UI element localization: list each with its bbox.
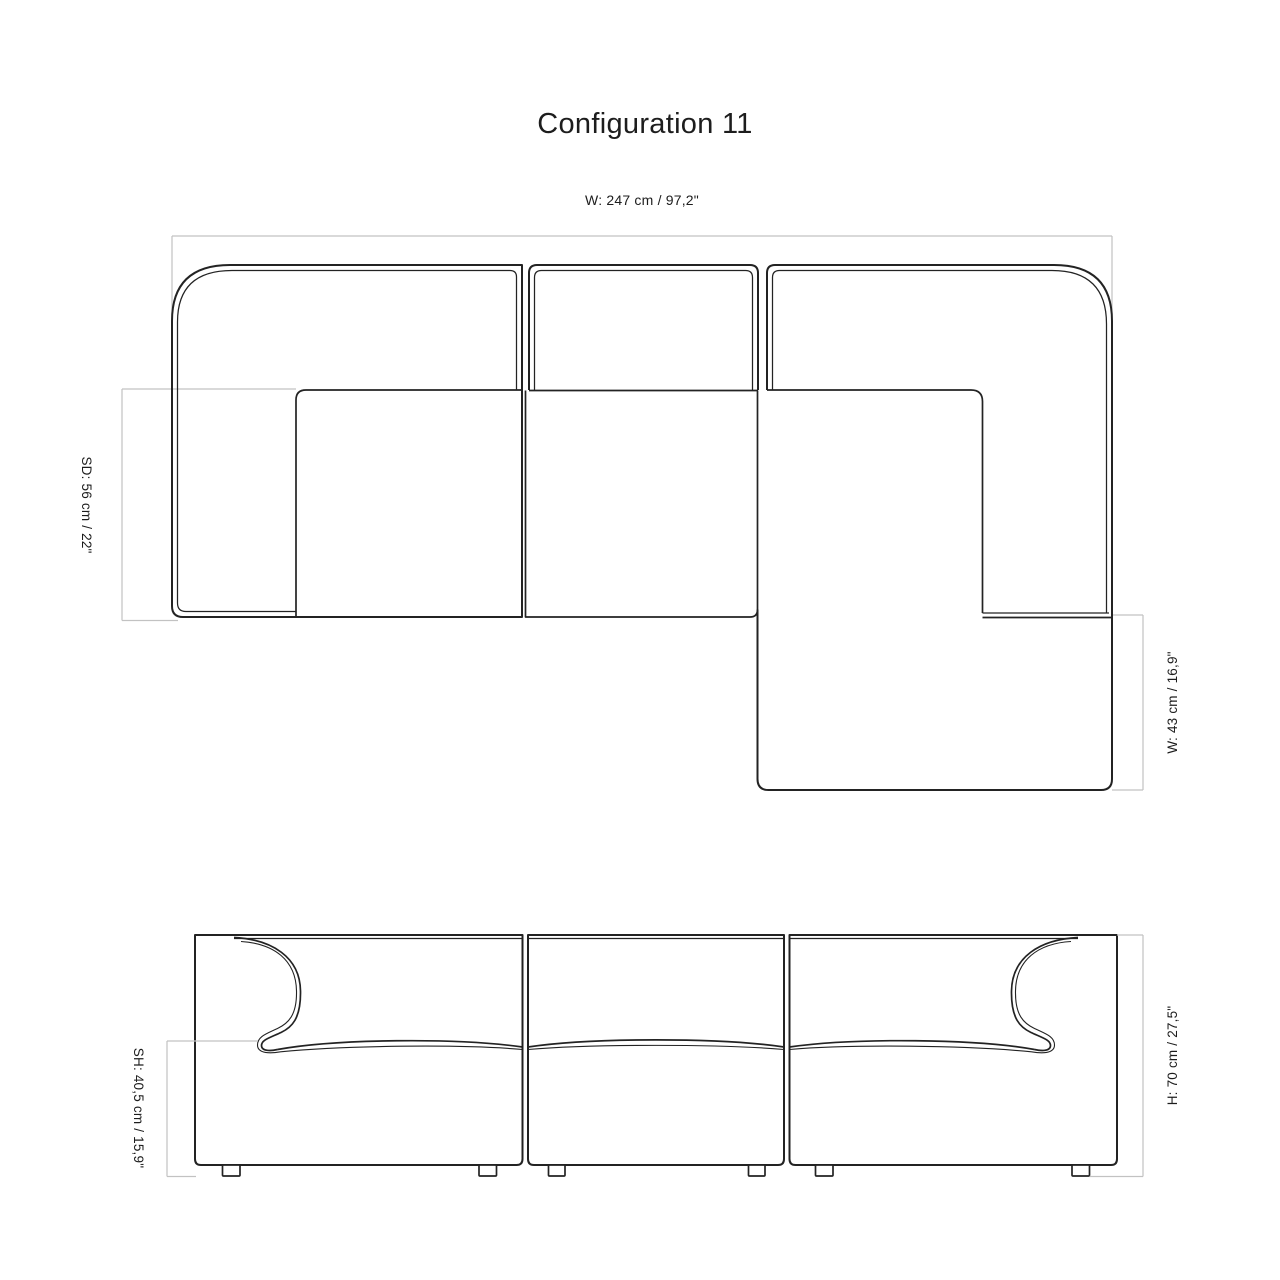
dimension-chaise-width: W: 43 cm / 16,9"	[1112, 615, 1180, 790]
top-right-module-outer-outline	[767, 265, 1112, 618]
dimension-seat-depth: SD: 56 cm / 22"	[79, 389, 296, 621]
front-middle-module	[528, 935, 784, 1176]
chaise-width-label: W: 43 cm / 16,9"	[1165, 651, 1180, 753]
top-left-module	[172, 265, 522, 617]
front-left-module	[195, 935, 523, 1176]
top-middle-module	[526, 265, 759, 617]
seat-depth-label: SD: 56 cm / 22"	[79, 456, 94, 553]
front-middle-cushion-bottom-line	[528, 1045, 784, 1049]
front-left-cushion-bottom-line	[281, 1046, 523, 1052]
front-left-module-foot-left	[223, 1165, 241, 1176]
top-right-module-inner-outline	[773, 271, 1107, 614]
overall-height-label: H: 70 cm / 27,5"	[1165, 1006, 1180, 1106]
top-left-module-inner-outline	[178, 271, 517, 612]
top-left-module-seat-line	[296, 390, 522, 617]
top-left-module-outer-outline	[172, 265, 522, 617]
front-middle-module-foot-right	[749, 1165, 766, 1176]
front-left-module-foot-right	[479, 1165, 497, 1176]
top-right-module	[758, 265, 1113, 790]
dimension-overall-width: W: 247 cm / 97,2"	[172, 192, 1112, 320]
configuration-diagram: Configuration 11 W: 247 cm / 97,2" SD: 5…	[0, 0, 1280, 1280]
top-right-module-seat-line	[767, 390, 983, 613]
page-title: Configuration 11	[537, 108, 752, 140]
top-chaise-outline	[758, 610, 1113, 791]
top-middle-module-back-outer	[529, 265, 758, 390]
front-left-cushion-top-line	[278, 1041, 523, 1050]
seat-height-label: SH: 40,5 cm / 15,9"	[131, 1048, 146, 1168]
front-right-module	[790, 935, 1118, 1176]
dimension-overall-height: H: 70 cm / 27,5"	[1090, 935, 1181, 1177]
overall-width-label: W: 247 cm / 97,2"	[585, 192, 699, 208]
front-view: SH: 40,5 cm / 15,9" H: 70 cm / 27,5"	[131, 935, 1180, 1177]
top-middle-module-seat-line	[526, 391, 758, 618]
top-middle-module-back-inner	[535, 271, 753, 391]
front-left-module-silhouette	[195, 935, 523, 1165]
front-middle-cushion-top-line	[528, 1040, 784, 1047]
top-view: W: 247 cm / 97,2" SD: 56 cm / 22" W: 43 …	[79, 192, 1180, 790]
front-middle-module-foot-left	[549, 1165, 566, 1176]
front-middle-module-silhouette	[528, 935, 784, 1165]
